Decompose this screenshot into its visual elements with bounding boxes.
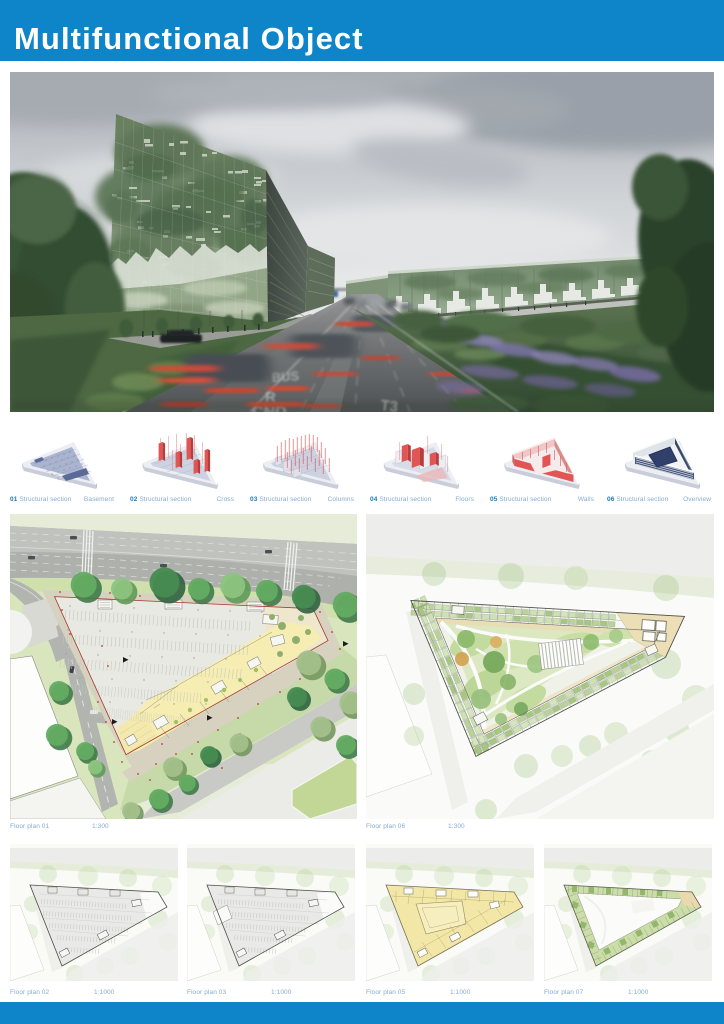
svg-text:BUS: BUS [271, 368, 300, 385]
